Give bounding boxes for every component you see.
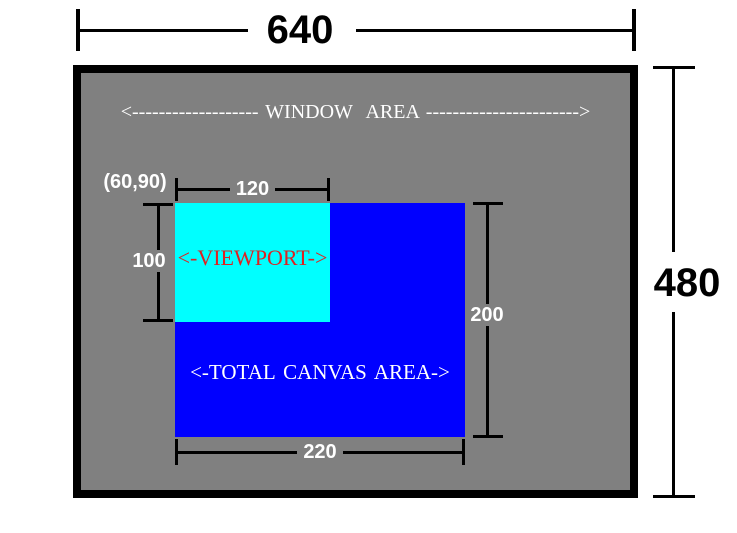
dim-window-height-bottom-cap [653, 495, 695, 498]
total-canvas-area-rect: <-TOTAL CANVAS AREA-> <-VIEWPORT-> [175, 203, 465, 437]
dim-viewport-height-bottom-cap [143, 319, 173, 322]
window-height-value: 480 [645, 262, 729, 304]
viewport-rect: <-VIEWPORT-> [175, 203, 330, 322]
dim-window-height-bottom-line [672, 312, 675, 498]
dim-window-width-left-line [78, 29, 248, 32]
dim-canvas-height-bottom-cap [473, 435, 503, 438]
dim-window-width-right-tick [632, 9, 636, 51]
viewport-height-value: 100 [126, 250, 171, 272]
window-width-value: 640 [252, 9, 348, 51]
viewport-width-value: 120 [230, 178, 275, 200]
total-canvas-area-label: <-TOTAL CANVAS AREA-> [175, 361, 465, 383]
viewport-height-label: 100 [119, 250, 179, 272]
coordinate-diagram: 640 480 <------------------- WINDOW AREA… [0, 0, 737, 533]
window-area-rect: <------------------- WINDOW AREA -------… [73, 65, 638, 498]
window-area-inner: <------------------- WINDOW AREA -------… [81, 73, 630, 490]
canvas-height-label: 200 [457, 304, 517, 326]
dim-window-height-top-line [672, 66, 675, 252]
canvas-width-value: 220 [297, 441, 342, 463]
viewport-width-label: 120 [175, 178, 330, 200]
viewport-label: <-VIEWPORT-> [175, 246, 330, 270]
canvas-width-label: 220 [175, 441, 465, 463]
window-area-label: <------------------- WINDOW AREA -------… [81, 101, 630, 123]
dim-window-width-right-line [356, 29, 636, 32]
canvas-height-value: 200 [464, 304, 509, 326]
viewport-origin-label: (60,90) [99, 171, 171, 193]
